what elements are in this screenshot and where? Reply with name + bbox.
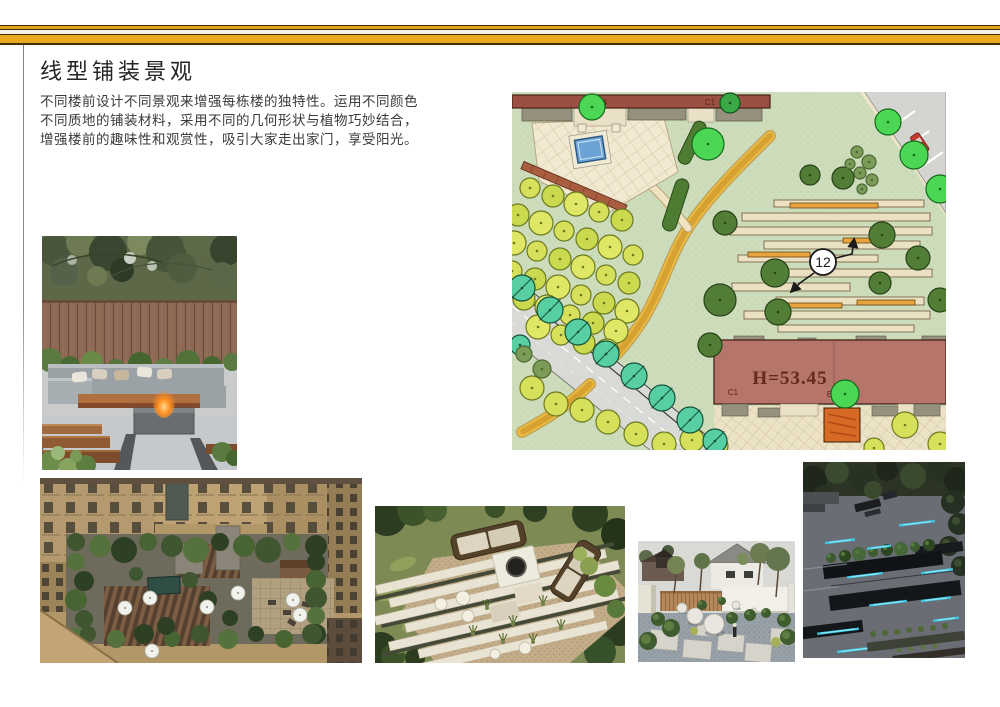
white-garden-wall [722,587,795,615]
accent-paving-bar [748,252,810,257]
wood-bench [78,394,200,403]
orchard-tree [529,211,553,235]
street-tree [703,429,727,450]
street-tree [593,341,619,367]
orchard-tree [512,204,529,226]
street-tree [512,275,535,301]
bright-green-tree [831,380,859,408]
bright-green-tree [692,128,724,160]
label-building-height: H=53.45 [752,368,827,389]
yellow-tree [892,412,918,438]
flame [153,390,175,418]
body-paragraph: 不同楼前设计不同景观来增强每栋楼的独特性。运用不同颜色 不同质地的铺装材料，采用… [40,92,460,149]
paragraph-line-1: 不同楼前设计不同景观来增强每栋楼的独特性。运用不同颜色 [40,92,460,111]
dark-green-tree [713,211,737,235]
orchard-tree [554,221,574,241]
accent-paving-bar [857,300,915,305]
olive-tree [866,174,878,186]
street-tree [565,319,591,345]
band-stripe [0,35,1000,43]
yellow-tree [520,376,544,400]
photo-sphere-garden [638,541,795,662]
paving-bar [742,213,930,221]
street-tree [537,297,563,323]
paving-bar [778,325,914,332]
dark-green-tree [928,288,946,312]
site-plan-image: B4-B4 C1 H=53.45 C1 B4-B4 [512,92,946,450]
dark-green-tree [800,165,820,185]
orchard-tree [576,228,598,250]
orchard-tree [542,185,564,207]
dark-green-tree [906,246,930,270]
orchard-tree [527,241,547,261]
olive-tree [862,155,876,169]
bright-green-tree [875,109,901,135]
olive-tree [854,167,866,179]
olive-tree [851,146,863,158]
bright-green-tree [579,94,605,120]
photo-firepit-patio [42,236,237,470]
street-tree [649,385,675,411]
olive-tree [516,346,532,362]
olive-tree [857,184,867,194]
orchard-tree [611,209,633,231]
paragraph-line-3: 增强楼前的趣味性和观赏性，吸引大家走出家门，享受阳光。 [40,130,460,149]
photo-led-plaza [803,462,965,658]
orchard-tree [571,255,595,279]
street-tree [677,407,703,433]
olive-tree [533,360,551,378]
bright-green-tree [720,93,740,113]
dark-green-tree [832,167,854,189]
yellow-tree [624,422,648,446]
band-stripe [0,43,1000,45]
page-title: 线型铺装景观 [40,54,196,86]
accent-paving-bar [790,203,878,208]
callout-number: 12 [815,254,831,270]
olive-tree [845,159,855,169]
label-c1-top: C1 [705,98,716,107]
dark-green-tree [869,272,891,294]
paragraph-line-2: 不同质地的铺装材料，采用不同的几何形状与植物巧妙结合， [40,111,460,130]
orchard-tree [596,265,616,285]
top-border-band [0,25,1000,45]
paving-bar [764,241,920,249]
wood-fence [660,591,722,611]
orchard-tree [549,248,571,270]
bright-green-tree [900,141,928,169]
orchard-tree [598,235,622,259]
street-tree [621,363,647,389]
dark-green-tree [704,284,736,316]
dark-green-tree [698,333,722,357]
site-plan-drawing: B4-B4 C1 H=53.45 C1 B4-B4 [512,92,946,450]
photo-courtyard-aerial [40,478,362,663]
photo-paver-lounge-overhead [375,506,625,663]
orchard-tree [623,245,643,265]
orchard-tree [571,285,591,305]
orchard-tree [520,178,540,198]
paving-bar [730,227,932,235]
orchard-tree [593,292,615,314]
paving-bar [732,283,850,291]
paving-bar [774,269,932,277]
yellow-tree [544,392,568,416]
orchard-tree [564,192,588,216]
orchard-tree [589,202,609,222]
orchard-tree [618,272,640,294]
dark-green-tree [869,222,895,248]
plan-pool [569,130,612,169]
left-margin-rule [23,45,24,485]
yellow-tree [570,398,594,422]
dark-green-tree [761,259,789,287]
label-c1-bottom: C1 [728,388,739,397]
dark-green-tree [765,299,791,325]
plan-orange-bed [824,408,860,442]
yellow-tree [596,410,620,434]
yellow-tree [652,432,676,450]
